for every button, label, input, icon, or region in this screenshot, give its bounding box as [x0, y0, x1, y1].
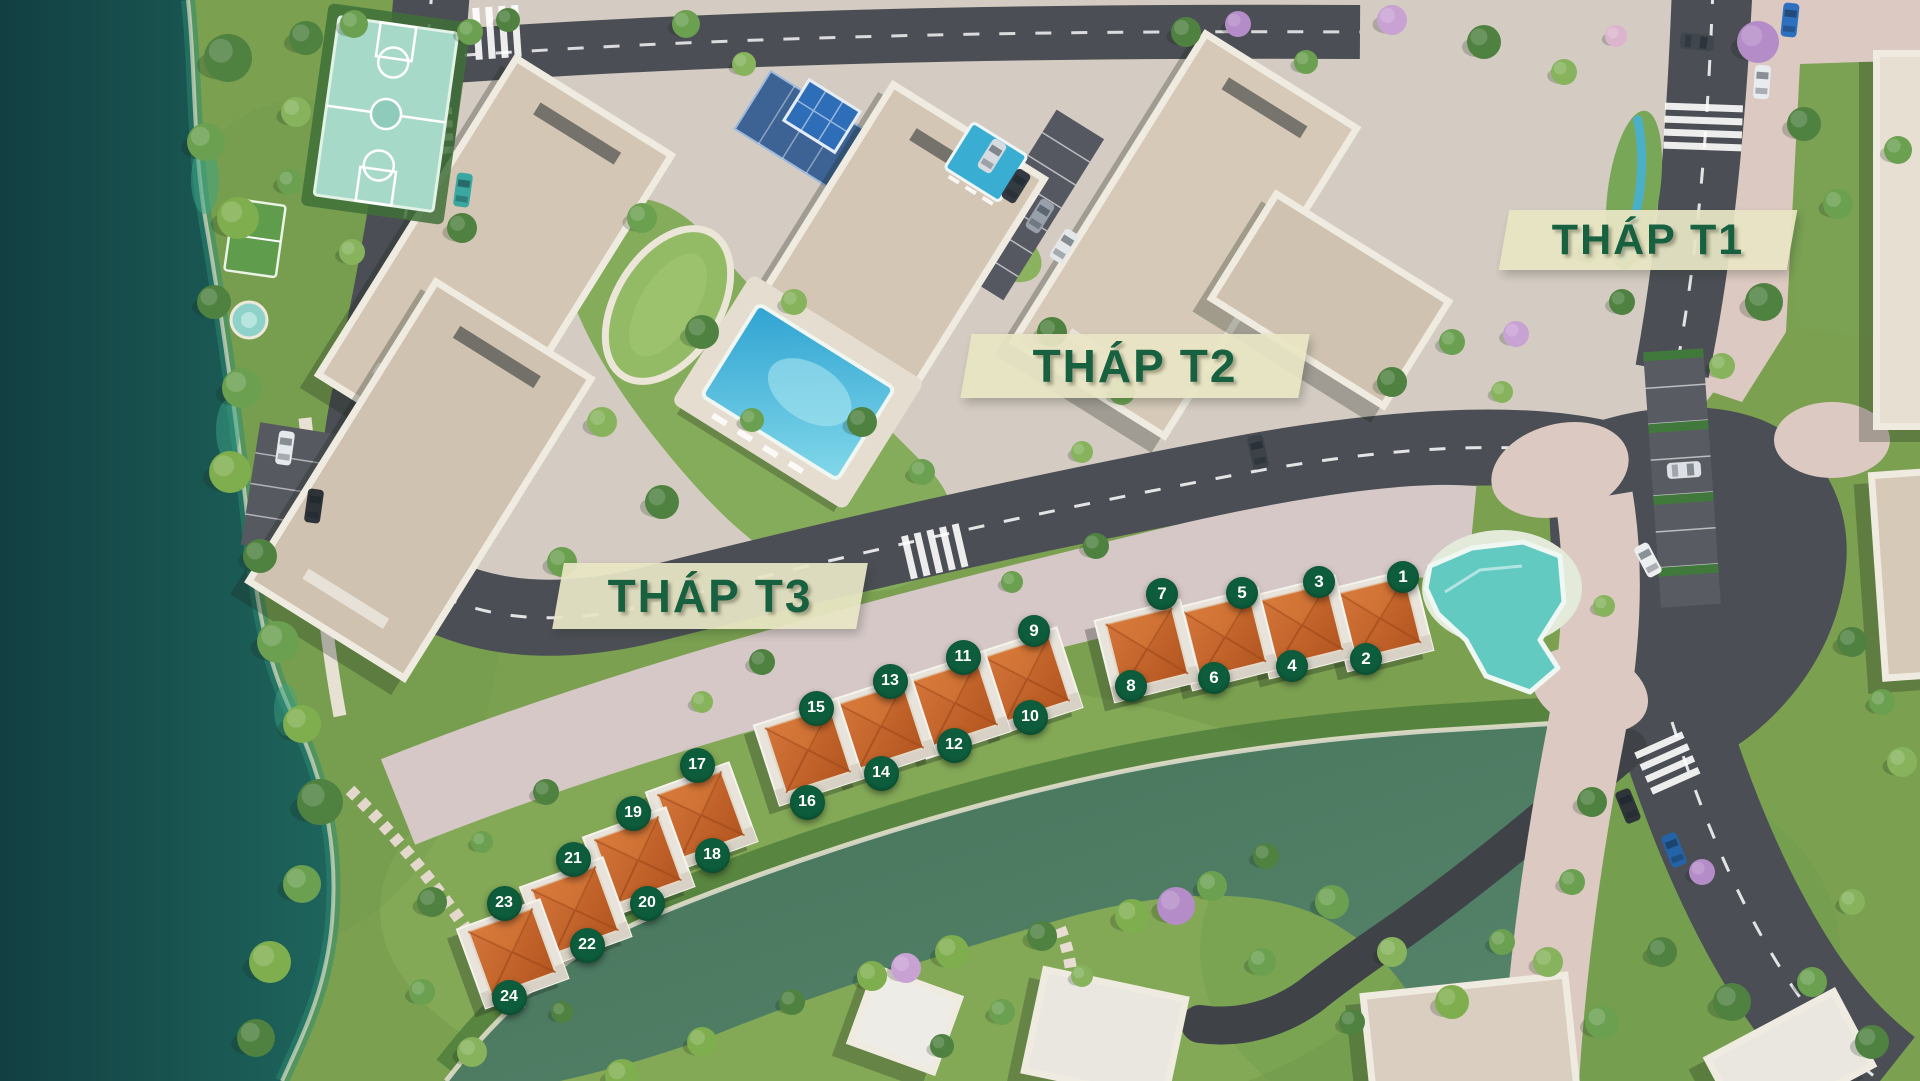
tower-label-t3: THÁP T3 — [558, 563, 862, 629]
unit-marker-8[interactable]: 8 — [1115, 670, 1147, 702]
tower-label-t1: THÁP T1 — [1504, 210, 1792, 270]
unit-marker-4[interactable]: 4 — [1276, 650, 1308, 682]
unit-marker-5[interactable]: 5 — [1226, 577, 1258, 609]
overlay-layer: THÁP T1THÁP T2THÁP T31234567891011121314… — [0, 0, 1920, 1081]
unit-marker-7[interactable]: 7 — [1146, 578, 1178, 610]
tower-label-t2: THÁP T2 — [966, 334, 1304, 398]
unit-marker-6[interactable]: 6 — [1198, 662, 1230, 694]
unit-marker-11[interactable]: 11 — [946, 640, 981, 675]
unit-marker-9[interactable]: 9 — [1018, 615, 1050, 647]
unit-marker-22[interactable]: 22 — [570, 928, 605, 963]
unit-marker-24[interactable]: 24 — [492, 980, 527, 1015]
unit-marker-3[interactable]: 3 — [1303, 566, 1335, 598]
unit-marker-18[interactable]: 18 — [695, 838, 730, 873]
unit-marker-1[interactable]: 1 — [1387, 561, 1419, 593]
master-plan-canvas: THÁP T1THÁP T2THÁP T31234567891011121314… — [0, 0, 1920, 1081]
unit-marker-12[interactable]: 12 — [937, 728, 972, 763]
unit-marker-2[interactable]: 2 — [1350, 643, 1382, 675]
unit-marker-17[interactable]: 17 — [680, 748, 715, 783]
tower-label-text: THÁP T1 — [1552, 216, 1744, 265]
unit-marker-19[interactable]: 19 — [616, 796, 651, 831]
unit-marker-20[interactable]: 20 — [630, 886, 665, 921]
unit-marker-16[interactable]: 16 — [790, 785, 825, 820]
tower-label-text: THÁP T3 — [608, 569, 813, 623]
unit-marker-23[interactable]: 23 — [487, 886, 522, 921]
unit-marker-10[interactable]: 10 — [1013, 700, 1048, 735]
tower-label-text: THÁP T2 — [1033, 339, 1238, 393]
unit-marker-14[interactable]: 14 — [864, 756, 899, 791]
unit-marker-15[interactable]: 15 — [799, 691, 834, 726]
unit-marker-21[interactable]: 21 — [556, 842, 591, 877]
unit-marker-13[interactable]: 13 — [873, 664, 908, 699]
